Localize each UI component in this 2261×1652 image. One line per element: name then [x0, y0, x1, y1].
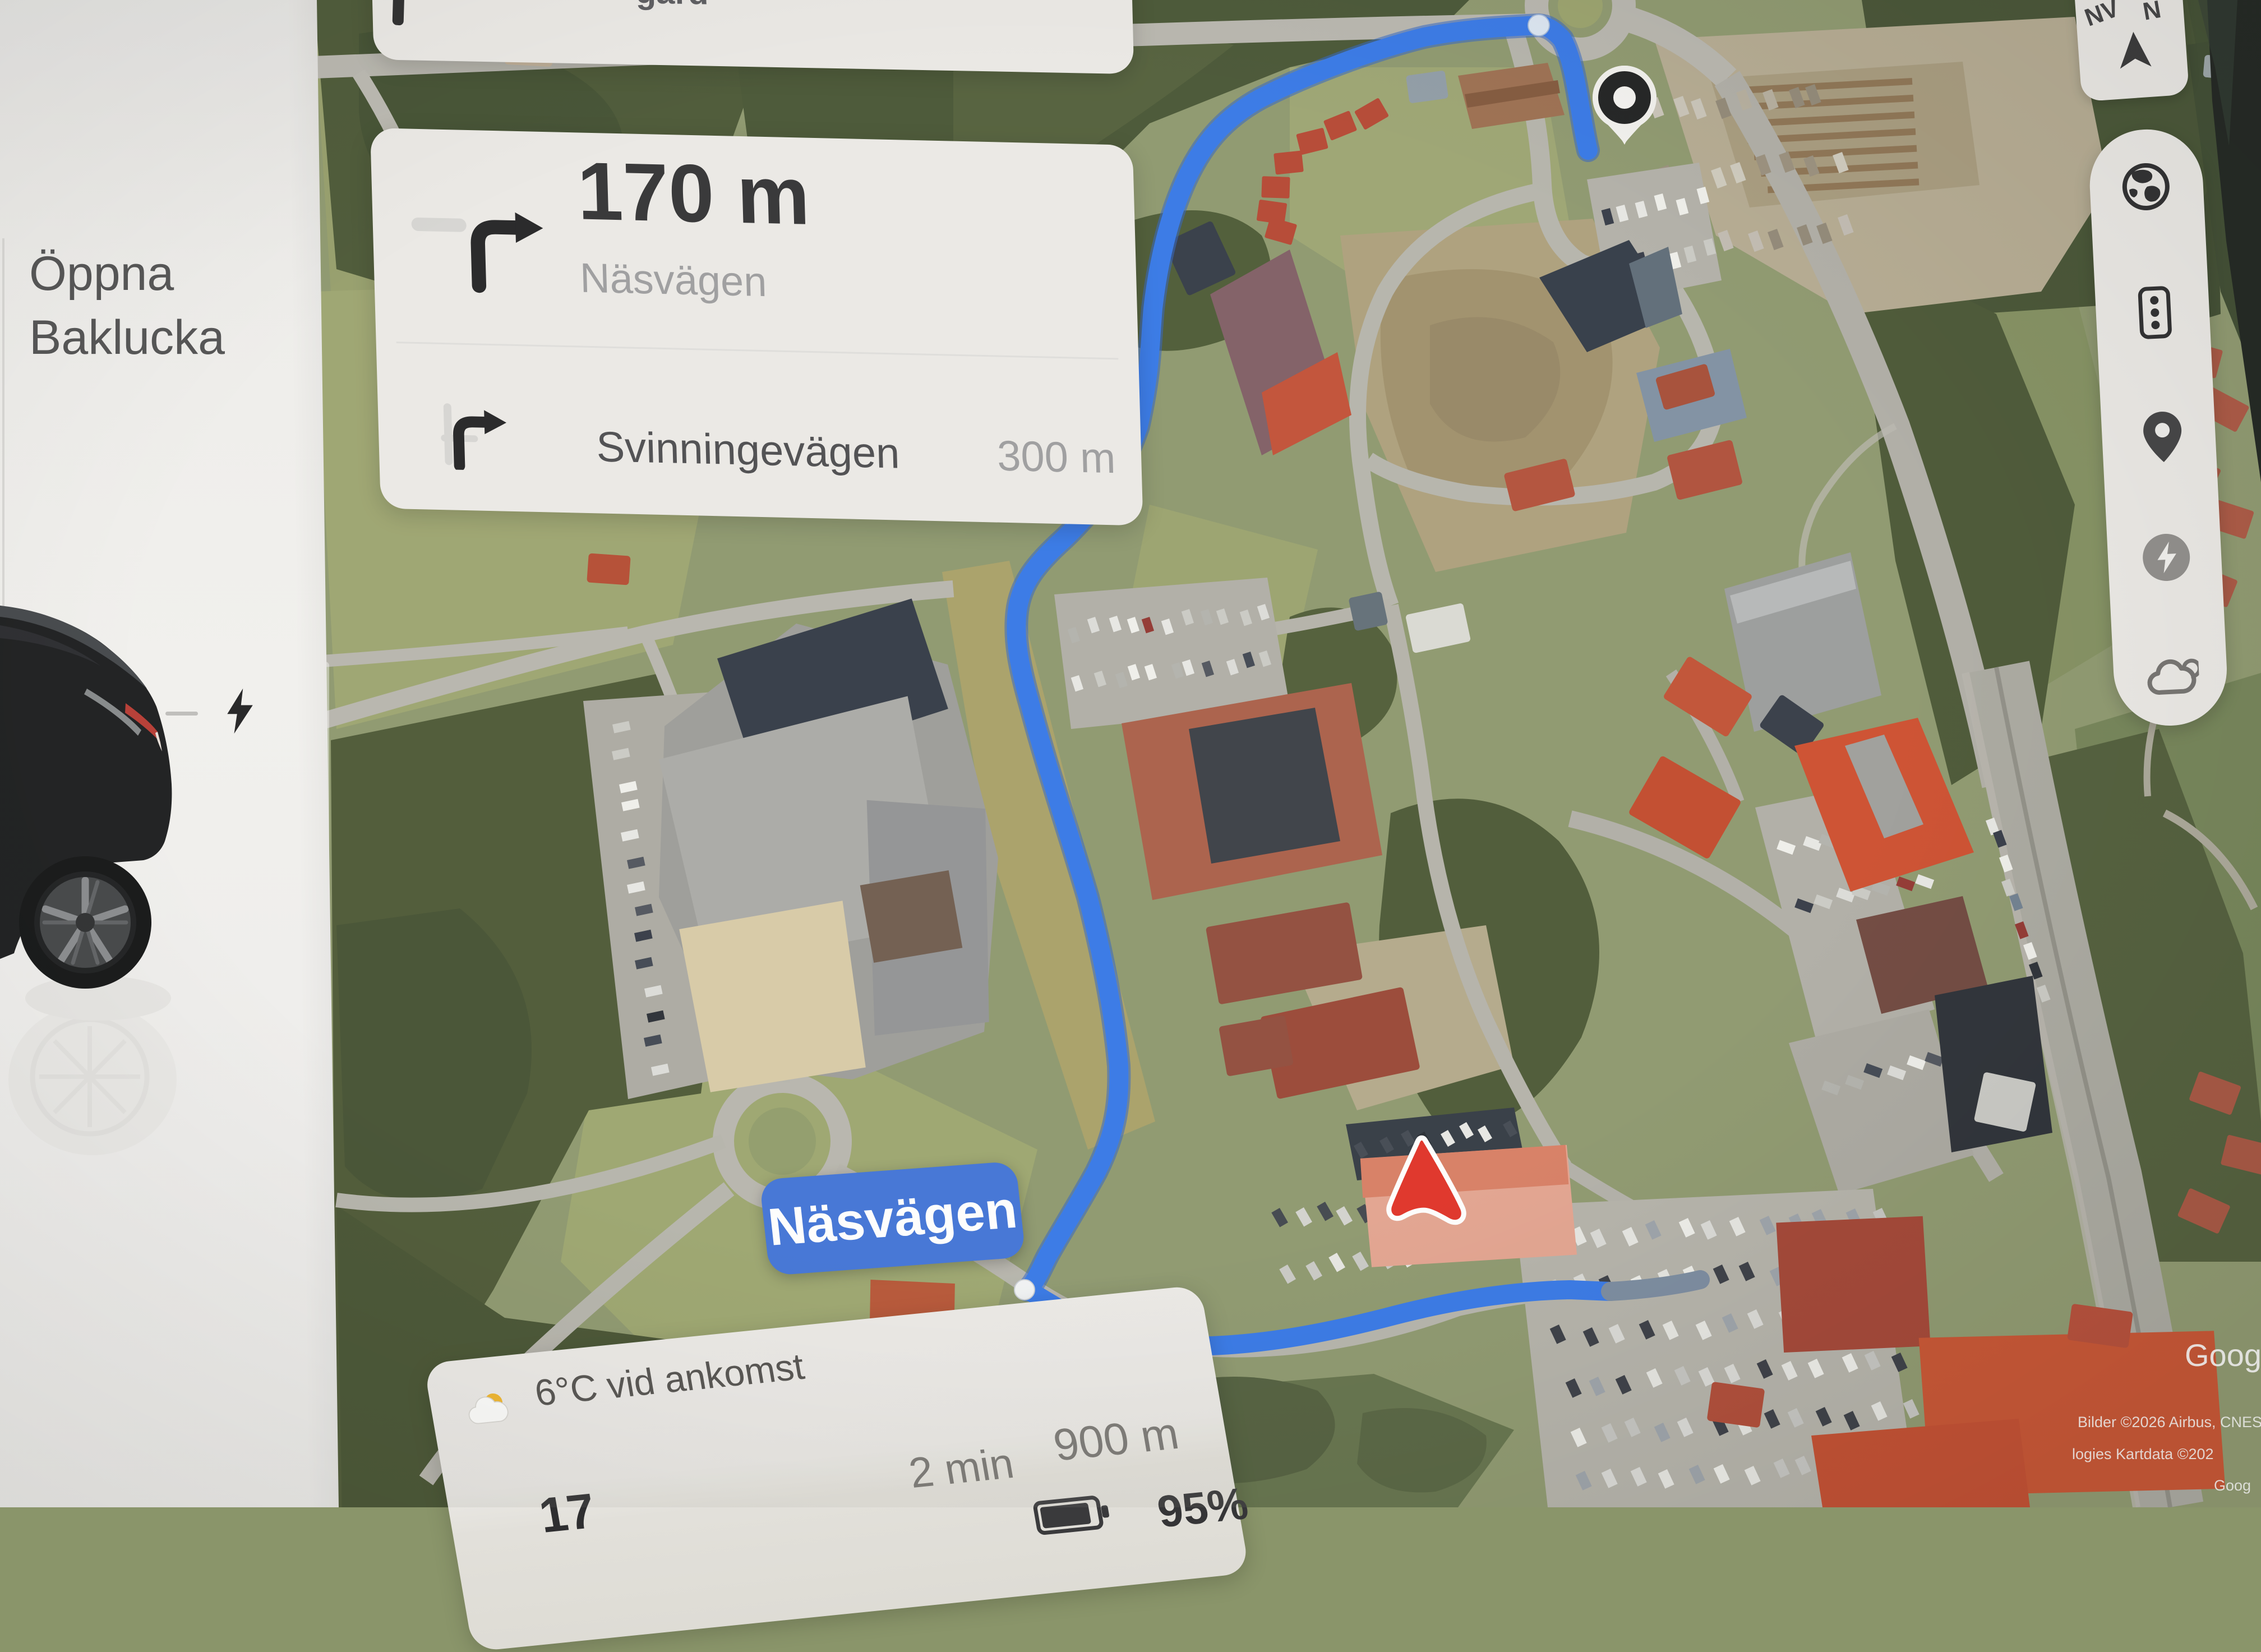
svg-text:Goog: Goog	[2214, 1477, 2251, 1494]
svg-text:logies Kartdata ©202: logies Kartdata ©202	[2072, 1446, 2214, 1462]
svg-text:Bilder ©2026 Airbus, CNES / Ai: Bilder ©2026 Airbus, CNES / Airbus	[2078, 1414, 2261, 1430]
svg-text:Google: Google	[2185, 1337, 2261, 1373]
